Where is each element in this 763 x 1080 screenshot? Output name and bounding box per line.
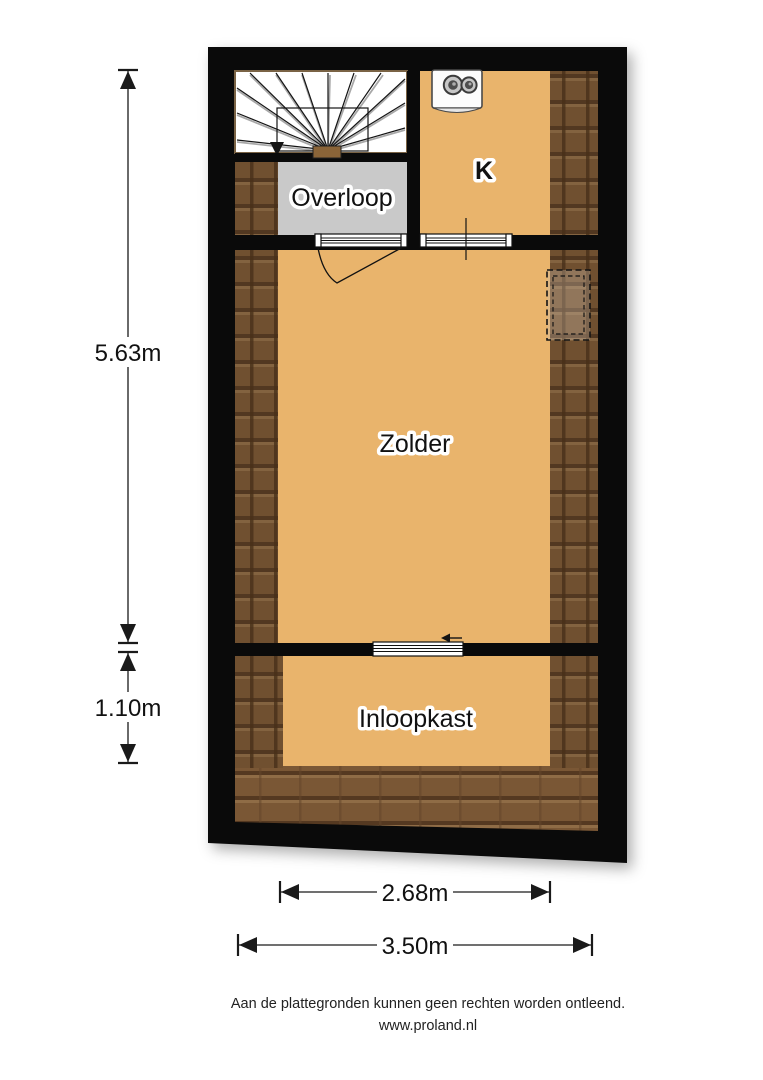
roof-right bbox=[550, 71, 598, 768]
wall-top-zolder bbox=[235, 235, 598, 250]
roof-window-icon bbox=[547, 270, 590, 340]
roof-left bbox=[235, 71, 283, 768]
floor-plan-drawing: Overloop K Zolder Inloopkast 5.63m 1.10m… bbox=[0, 0, 763, 1080]
window-overloop bbox=[315, 234, 407, 247]
dimension-label-width-outer: 3.50m bbox=[382, 933, 449, 960]
room-label-k: K bbox=[475, 157, 493, 185]
room-label-zolder: Zolder bbox=[380, 430, 451, 458]
boiler-icon bbox=[432, 70, 482, 113]
stair-threshold bbox=[313, 146, 341, 158]
footer-disclaimer: Aan de plattegronden kunnen geen rechten… bbox=[231, 996, 625, 1012]
dimension-label-width-inner: 2.68m bbox=[382, 880, 449, 907]
floor-plan-page: Overloop K Zolder Inloopkast 5.63m 1.10m… bbox=[0, 0, 763, 1080]
dimension-label-height-main: 5.63m bbox=[95, 340, 162, 367]
room-label-overloop: Overloop bbox=[291, 184, 392, 212]
wall-stairs-k bbox=[407, 71, 420, 250]
staircase bbox=[235, 71, 407, 156]
footer-website: www.proland.nl bbox=[378, 1018, 477, 1034]
dimension-label-height-closet: 1.10m bbox=[95, 695, 162, 722]
room-label-inloopkast: Inloopkast bbox=[359, 705, 473, 733]
